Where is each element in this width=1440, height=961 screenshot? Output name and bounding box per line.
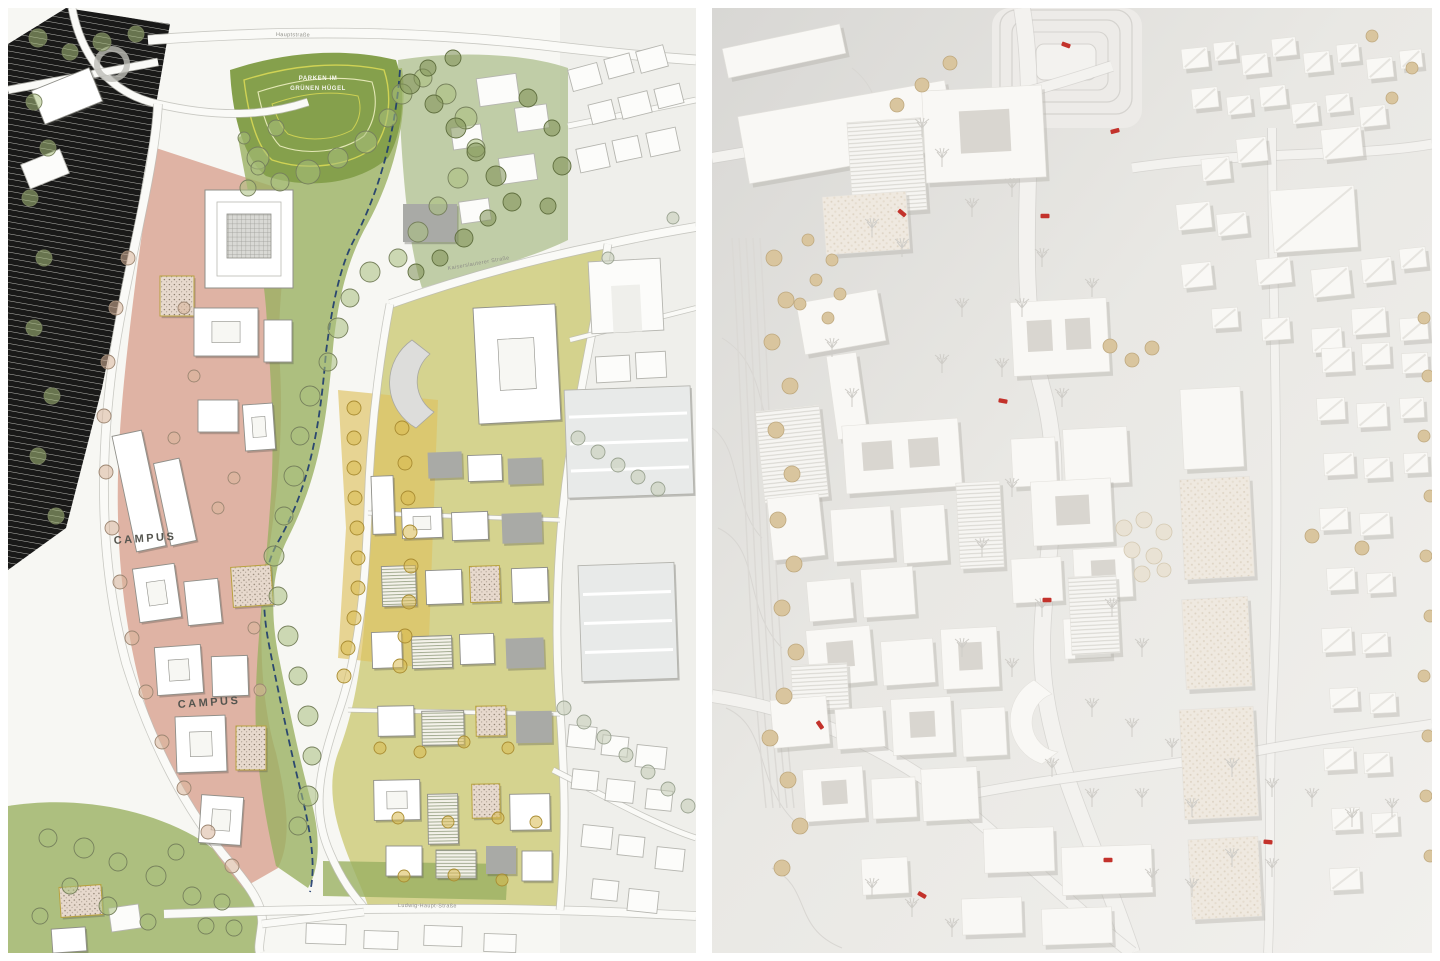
- tree: [22, 190, 38, 206]
- building: [154, 644, 205, 697]
- tree: [238, 132, 250, 144]
- tree: [319, 353, 337, 371]
- tree: [298, 786, 318, 806]
- model-building: [1179, 476, 1257, 584]
- building: [578, 562, 680, 684]
- pale-tree: [1116, 520, 1132, 536]
- model-building: [921, 766, 983, 826]
- building: [508, 457, 545, 486]
- beige-tree: [1418, 312, 1430, 324]
- building: [194, 308, 260, 358]
- model-building: [1176, 201, 1216, 235]
- tree: [611, 458, 625, 472]
- model-building: [1216, 211, 1252, 241]
- tree: [97, 409, 111, 423]
- tree: [225, 859, 239, 873]
- tree: [251, 161, 265, 175]
- building: [175, 715, 229, 775]
- tree: [289, 667, 307, 685]
- beige-tree: [1420, 790, 1432, 802]
- beige-tree: [826, 254, 838, 266]
- tree: [177, 781, 191, 795]
- model-building: [842, 418, 966, 499]
- building: [236, 726, 268, 772]
- red-car: [1041, 214, 1050, 218]
- beige-tree: [764, 334, 780, 350]
- tree: [140, 914, 156, 930]
- tree: [619, 748, 633, 762]
- tree: [48, 508, 64, 524]
- building: [459, 633, 496, 666]
- tree: [395, 421, 409, 435]
- tree: [403, 525, 417, 539]
- building: [635, 351, 666, 379]
- model-photo-panel: [712, 8, 1432, 953]
- beige-tree: [770, 512, 786, 528]
- tree: [168, 432, 180, 444]
- tree: [351, 551, 365, 565]
- pale-tree: [1124, 542, 1140, 558]
- model-building: [891, 696, 957, 760]
- beige-tree: [1366, 30, 1378, 42]
- building: [184, 578, 224, 628]
- building: [627, 888, 659, 913]
- tree: [198, 918, 214, 934]
- model-building: [1261, 317, 1294, 346]
- green-hill-label-line1: PARKEN IM: [299, 76, 338, 82]
- model-photo: [712, 8, 1432, 953]
- pale-tree: [1136, 512, 1152, 528]
- tree: [360, 262, 380, 282]
- model-building: [1236, 136, 1272, 168]
- building: [306, 923, 347, 944]
- tree: [631, 470, 645, 484]
- tree: [446, 118, 466, 138]
- beige-tree: [768, 422, 784, 438]
- model-building: [1068, 575, 1123, 660]
- tree: [404, 559, 418, 573]
- building: [469, 565, 502, 604]
- model-building: [1010, 297, 1113, 381]
- model-building: [1403, 452, 1431, 478]
- tree: [379, 109, 397, 127]
- tree: [347, 611, 361, 625]
- building: [564, 386, 695, 501]
- building: [424, 925, 463, 946]
- tree: [467, 143, 485, 161]
- tree: [105, 521, 119, 535]
- model-building: [1270, 185, 1361, 257]
- tree: [155, 735, 169, 749]
- model-building: [1319, 507, 1351, 535]
- tree: [398, 870, 410, 882]
- green-hill-label-line2: GRÜNEN HÜGEL: [290, 85, 346, 92]
- tree: [146, 866, 166, 886]
- beige-tree: [834, 288, 846, 300]
- model-building: [881, 638, 939, 690]
- tree: [486, 166, 506, 186]
- tree: [392, 812, 404, 824]
- building: [198, 400, 240, 434]
- tree: [355, 131, 377, 153]
- tree: [226, 920, 242, 936]
- beige-tree: [762, 730, 778, 746]
- model-building: [1361, 632, 1391, 658]
- tree: [271, 173, 289, 191]
- beige-tree: [1424, 850, 1432, 862]
- tree: [398, 456, 412, 470]
- tree: [577, 715, 591, 729]
- building: [198, 795, 245, 848]
- building: [591, 879, 619, 902]
- tree: [30, 448, 46, 464]
- beige-tree: [774, 600, 790, 616]
- building: [476, 73, 520, 106]
- tree: [240, 180, 256, 196]
- model-building: [835, 706, 889, 754]
- building: [595, 355, 630, 383]
- model-building: [806, 578, 857, 626]
- beige-tree: [782, 378, 798, 394]
- beige-tree: [1406, 62, 1418, 74]
- building: [473, 304, 563, 426]
- model-building: [1329, 867, 1363, 895]
- tree: [74, 838, 94, 858]
- tree: [62, 44, 78, 60]
- tree: [188, 370, 200, 382]
- building: [51, 927, 88, 953]
- tree: [651, 482, 665, 496]
- tree: [350, 521, 364, 535]
- building: [476, 706, 508, 739]
- pale-tree: [1146, 548, 1162, 564]
- building: [588, 258, 664, 334]
- model-building: [1256, 256, 1296, 290]
- tree: [26, 320, 42, 336]
- tree: [201, 825, 215, 839]
- tree: [101, 355, 115, 369]
- street-label-top: Hauptstraße: [276, 32, 310, 39]
- tree: [661, 782, 675, 796]
- tree: [374, 742, 386, 754]
- tree: [591, 445, 605, 459]
- tree: [347, 431, 361, 445]
- tree: [26, 94, 42, 110]
- building: [581, 824, 613, 849]
- model-building: [1041, 907, 1115, 950]
- tree: [400, 74, 420, 94]
- tree: [32, 908, 48, 924]
- model-building: [1361, 342, 1393, 370]
- pale-tree: [1157, 563, 1171, 577]
- tree: [429, 197, 447, 215]
- beige-tree: [1145, 341, 1159, 355]
- model-building: [1321, 126, 1367, 165]
- beige-tree: [1422, 370, 1432, 382]
- tree: [571, 431, 585, 445]
- model-building: [1361, 256, 1397, 288]
- model-building: [961, 897, 1025, 940]
- arrival-hall-building: [205, 190, 293, 288]
- tree: [278, 626, 298, 646]
- red-car: [1263, 839, 1272, 844]
- beige-tree: [792, 818, 808, 834]
- building: [371, 476, 397, 537]
- tree: [544, 120, 560, 136]
- street-label-south: Ludwig-Haupt-Straße: [398, 903, 457, 910]
- tree: [289, 817, 307, 835]
- tree: [414, 746, 426, 758]
- building: [655, 847, 685, 872]
- tree: [420, 60, 436, 76]
- tree: [445, 50, 461, 66]
- beige-tree: [794, 298, 806, 310]
- tree: [298, 706, 318, 726]
- model-building: [802, 766, 869, 827]
- tree: [291, 427, 309, 445]
- tree: [99, 897, 117, 915]
- model-building: [1351, 307, 1390, 340]
- tree: [503, 193, 521, 211]
- tree: [113, 575, 127, 589]
- building: [617, 835, 645, 858]
- tree: [448, 869, 460, 881]
- building: [411, 635, 454, 671]
- beige-tree: [1103, 339, 1117, 353]
- site-plan-panel: CAMPUS CAMPUS PARKEN IM GRÜNEN HÜGEL Hau…: [8, 8, 696, 953]
- building: [605, 779, 635, 804]
- tree: [448, 168, 468, 188]
- tree: [40, 140, 56, 156]
- building: [160, 276, 196, 318]
- model-building: [1363, 457, 1393, 483]
- beige-tree: [766, 250, 782, 266]
- model-building: [767, 493, 829, 565]
- model-building: [1181, 261, 1217, 293]
- building: [511, 567, 550, 604]
- tree: [681, 799, 695, 813]
- tree: [393, 659, 407, 673]
- beige-tree: [776, 688, 792, 704]
- tree: [44, 388, 60, 404]
- tree: [351, 581, 365, 595]
- tree: [93, 33, 111, 51]
- tree: [341, 641, 355, 655]
- tree: [455, 229, 473, 247]
- tree: [341, 289, 359, 307]
- model-building: [1316, 397, 1348, 425]
- red-car: [1043, 598, 1052, 602]
- beige-tree: [890, 98, 904, 112]
- model-building: [1030, 478, 1116, 551]
- model-building: [1399, 397, 1427, 423]
- tree: [125, 631, 139, 645]
- tree: [39, 829, 57, 847]
- tree: [496, 874, 508, 886]
- model-building: [861, 857, 912, 900]
- red-car: [1104, 858, 1113, 862]
- model-building: [871, 777, 920, 824]
- model-building: [940, 626, 1002, 693]
- building: [428, 451, 465, 480]
- building: [468, 454, 505, 483]
- model-building: [1180, 386, 1247, 474]
- building: [242, 403, 277, 453]
- tree: [553, 157, 571, 175]
- beige-tree: [788, 644, 804, 660]
- model-building: [1321, 347, 1355, 377]
- tree: [303, 747, 321, 765]
- beige-tree: [778, 292, 794, 308]
- building: [486, 846, 518, 876]
- model-building: [1188, 836, 1265, 924]
- tree: [264, 546, 284, 566]
- tree: [284, 466, 304, 486]
- building: [522, 851, 554, 883]
- tree: [109, 853, 127, 871]
- model-building: [956, 481, 1008, 574]
- beige-tree: [780, 772, 796, 788]
- building: [484, 933, 517, 952]
- building: [211, 655, 250, 698]
- tree: [62, 878, 78, 894]
- model-building: [1326, 567, 1358, 595]
- beige-tree: [1422, 730, 1432, 742]
- tree: [139, 685, 153, 699]
- beige-tree: [1305, 529, 1319, 543]
- beige-tree: [1418, 670, 1430, 682]
- building: [516, 711, 554, 746]
- model-building: [830, 506, 897, 567]
- model-building: [1182, 596, 1256, 694]
- tree: [337, 669, 351, 683]
- model-building: [755, 405, 832, 508]
- tree: [254, 684, 266, 696]
- tree: [347, 401, 361, 415]
- model-building: [900, 504, 951, 568]
- tree: [667, 212, 679, 224]
- tree: [109, 301, 123, 315]
- tree: [29, 29, 47, 47]
- model-building: [1363, 752, 1393, 778]
- tree: [432, 250, 448, 266]
- tree: [296, 160, 320, 184]
- tree: [99, 465, 113, 479]
- building: [364, 930, 399, 949]
- tree: [502, 742, 514, 754]
- tree: [408, 264, 424, 280]
- model-building: [1329, 687, 1361, 713]
- building: [510, 794, 552, 833]
- beige-tree: [1418, 430, 1430, 442]
- beige-tree: [774, 860, 790, 876]
- building: [505, 637, 546, 671]
- model-building: [1371, 812, 1401, 838]
- tree: [347, 461, 361, 475]
- model-building: [1323, 747, 1357, 775]
- tree: [442, 816, 454, 828]
- tree: [168, 844, 184, 860]
- tree: [183, 887, 201, 905]
- building: [452, 511, 491, 542]
- tree: [530, 816, 542, 828]
- model-building: [1061, 844, 1156, 900]
- tree: [492, 812, 504, 824]
- tree: [178, 302, 190, 314]
- beige-tree: [1386, 92, 1398, 104]
- tree: [121, 251, 135, 265]
- beige-tree: [1424, 610, 1432, 622]
- beige-tree: [943, 56, 957, 70]
- tree: [328, 318, 348, 338]
- tree: [214, 894, 230, 910]
- tree: [602, 252, 614, 264]
- building: [378, 706, 416, 739]
- tree: [228, 472, 240, 484]
- site-plan-drawing: CAMPUS CAMPUS PARKEN IM GRÜNEN HÜGEL Hau…: [8, 8, 696, 953]
- beige-tree: [810, 274, 822, 286]
- tree: [128, 26, 144, 42]
- model-building: [961, 707, 1011, 762]
- tree: [408, 222, 428, 242]
- tree: [401, 491, 415, 505]
- tree: [212, 502, 224, 514]
- building: [132, 563, 183, 625]
- tree: [269, 587, 287, 605]
- tree: [328, 148, 348, 168]
- beige-tree: [784, 466, 800, 482]
- tree: [402, 595, 416, 609]
- model-building: [1321, 627, 1355, 657]
- architecture-board: CAMPUS CAMPUS PARKEN IM GRÜNEN HÜGEL Hau…: [0, 0, 1440, 961]
- tree: [425, 95, 443, 113]
- tree: [248, 622, 260, 634]
- model-building: [1311, 266, 1355, 303]
- model-building: [1359, 512, 1393, 540]
- building: [571, 769, 599, 792]
- beige-tree: [802, 234, 814, 246]
- model-building: [1323, 452, 1357, 480]
- tree: [36, 250, 52, 266]
- beige-tree: [1125, 353, 1139, 367]
- model-building: [770, 695, 833, 752]
- building: [425, 569, 464, 606]
- beige-tree: [786, 556, 802, 572]
- tree: [540, 198, 556, 214]
- tree: [389, 249, 407, 267]
- pale-tree: [1156, 524, 1172, 540]
- model-building: [1011, 557, 1066, 608]
- model-building: [1366, 572, 1396, 598]
- beige-tree: [1424, 490, 1432, 502]
- model-building: [983, 827, 1058, 878]
- building: [501, 512, 544, 546]
- beige-tree: [1355, 541, 1369, 555]
- tree: [275, 507, 293, 525]
- building: [231, 565, 275, 610]
- tree: [398, 629, 412, 643]
- beige-tree: [822, 312, 834, 324]
- tree: [458, 736, 470, 748]
- tree: [641, 765, 655, 779]
- beige-tree: [1420, 550, 1432, 562]
- tree: [348, 491, 362, 505]
- model-building: [922, 85, 1050, 188]
- tree: [597, 730, 611, 744]
- building: [264, 320, 294, 364]
- beige-tree: [915, 78, 929, 92]
- model-building: [1211, 307, 1242, 333]
